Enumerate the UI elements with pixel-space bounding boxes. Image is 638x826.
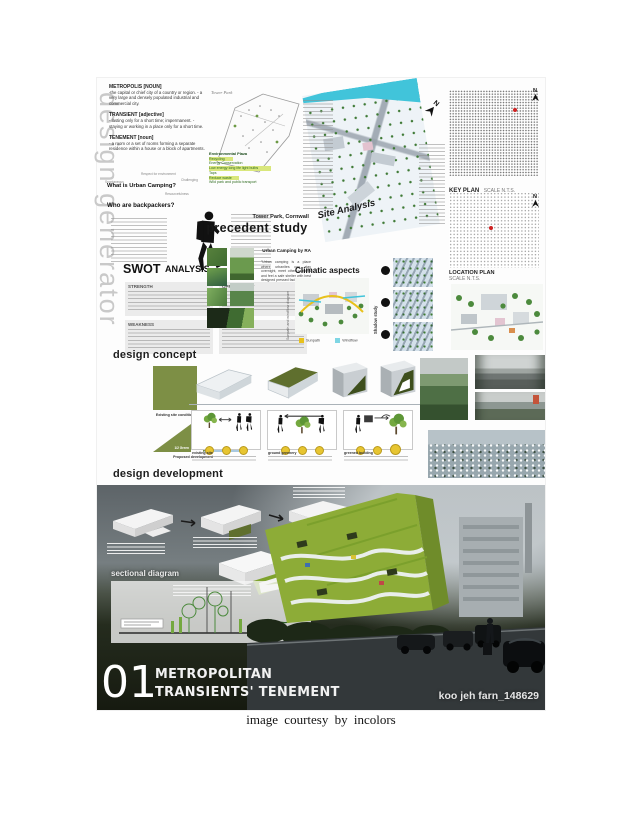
massing-stage-2	[263, 358, 323, 404]
text-placeholder	[192, 456, 256, 463]
precedent-feature-list: Environmental Plaza Recycling Energy Con…	[209, 152, 271, 185]
definition-text: - a room or a set of rooms forming a sep…	[109, 141, 205, 152]
smokestack	[525, 503, 532, 573]
design-development-panel: sectional diagram	[97, 485, 545, 710]
sunpath-legend-label: Sunpath	[306, 339, 320, 343]
project-title-line1: METROPOLITAN	[155, 666, 272, 682]
swot-strength-box: STRENGTH	[125, 282, 213, 316]
site-photo-street-2	[475, 392, 545, 420]
shadow-study-image	[393, 290, 433, 319]
concept-card-caption: greened building	[344, 451, 410, 455]
urban-camping-mindmap: Respect for environment Challenging Spon…	[103, 172, 213, 204]
text-placeholder	[268, 456, 332, 463]
backpackers-title: Who are backpackers?	[107, 202, 247, 209]
sunpath-legend-swatch	[299, 338, 304, 343]
two-way-arrow-icon	[219, 418, 231, 421]
concept-card-existing	[191, 410, 261, 450]
shadow-study-label: Shadow study	[373, 278, 378, 334]
billboard-accent	[533, 395, 539, 404]
feature-text: Environmental Plaza	[209, 151, 247, 156]
mindmap-satellite: Challenging	[181, 178, 198, 182]
north-arrow-icon	[532, 94, 539, 101]
climatic-title: Climatic aspects	[295, 266, 360, 275]
background-building	[459, 517, 523, 617]
case-photo	[207, 248, 227, 266]
massing-stage-3	[329, 356, 371, 402]
precedent-study-title: precedent study	[205, 221, 309, 235]
feature-item: Wild park and public transport	[209, 180, 271, 185]
concept-card-diagram	[268, 411, 336, 437]
design-development-heading: design development	[113, 468, 223, 480]
definition-text: -the capital or chief city of a country …	[109, 90, 205, 106]
building-render	[247, 485, 545, 710]
climatic-side-label: Sunpath and windflow diagram	[286, 274, 290, 340]
arrow-icon	[181, 520, 195, 526]
massing-baseline	[189, 404, 429, 405]
text-placeholder	[344, 456, 408, 463]
mindmap-title: What is Urban Camping?	[107, 183, 176, 189]
climatic-axon-diagram	[295, 278, 369, 334]
case-photo	[207, 268, 227, 286]
concept-card-ground-greenery	[267, 410, 337, 450]
concept-card-caption: ground greenery	[268, 451, 334, 455]
page: design generator METROPOLIS [NOUN] -the …	[0, 0, 638, 826]
image-caption: image courtesy by incolors	[97, 712, 545, 728]
site-photo-greenery	[420, 358, 468, 420]
precedent-plan-script-label: Tower Park	[211, 90, 232, 95]
definitions-block: METROPOLIS [NOUN] -the capital or chief …	[109, 84, 205, 152]
site-photo-street-1	[475, 355, 545, 389]
case-photo	[230, 283, 254, 306]
right-arrow-icon	[375, 415, 391, 420]
mindmap-satellite: Resourcefulness	[165, 192, 189, 196]
windflow-legend-label: Windflow	[342, 339, 357, 343]
case-photo	[207, 308, 254, 328]
concept-card-caption: existing site	[192, 451, 258, 455]
text-placeholder	[222, 329, 304, 349]
north-arrow: N	[529, 194, 541, 209]
location-plan-map	[449, 192, 539, 268]
author-watermark: koo jeh farn_148629	[439, 690, 539, 702]
shadow-study-image	[393, 322, 433, 351]
key-plan-map	[449, 90, 539, 176]
board-number: 01	[101, 661, 157, 705]
clock-icon	[381, 298, 390, 307]
presentation-board: design generator METROPOLIS [NOUN] -the …	[97, 78, 545, 710]
clock-icon	[381, 266, 390, 275]
case-photo	[230, 248, 254, 280]
mindmap-satellite: Respect for environment	[141, 172, 176, 176]
north-arrow-icon	[532, 200, 539, 207]
triangle-label: 1/2 Green	[174, 446, 189, 450]
swot-quadrant-label: WEAKNESS	[125, 320, 213, 328]
concept-card-diagram	[344, 411, 412, 437]
north-arrow: N	[421, 97, 443, 119]
map-annotations-right	[419, 144, 445, 224]
green-triangle-diagram: 1/2 Green	[153, 424, 191, 452]
text-placeholder	[128, 329, 210, 349]
concept-card-greened-building	[343, 410, 413, 450]
location-plan-label: LOCATION PLAN SCALE N.T.S.	[449, 270, 495, 282]
concept-card-diagram	[192, 411, 260, 437]
feature-item: Environmental Plaza	[209, 152, 271, 157]
site-axonometric-view	[451, 284, 543, 350]
massing-step-1	[113, 509, 173, 537]
definition-item: METROPOLIS [NOUN] -the capital or chief …	[109, 84, 205, 106]
annotation-placeholder	[107, 543, 165, 555]
definition-text: - lasting only for a short time; imperma…	[109, 118, 205, 129]
map-annotations-left	[303, 100, 333, 210]
text-placeholder	[128, 291, 210, 311]
swot-title: SWOT	[123, 262, 161, 276]
swot-subtitle: ANALYSIS	[165, 264, 210, 274]
north-arrow: N	[529, 88, 541, 103]
climatic-legend: Sunpath Windflow	[299, 338, 358, 343]
precedent-location-label: Tower Park, Cornwall	[235, 214, 309, 220]
swot-quadrant-label: STRENGTH	[125, 282, 213, 290]
definition-item: TRANSIENT [adjective] - lasting only for…	[109, 112, 205, 129]
design-concept-heading: design concept	[113, 349, 196, 361]
site-marker-dot	[513, 108, 517, 112]
feature-item: Low energy long life light bulbs	[209, 166, 271, 171]
site-photo-cityscape	[428, 430, 545, 478]
map-site-marker	[362, 142, 373, 151]
definition-item: TENEMENT [noun] - a room or a set of roo…	[109, 135, 205, 152]
mindmap-satellite	[111, 194, 112, 198]
site-marker-dot	[489, 226, 493, 230]
case-study-title: Urban Camping by RA	[259, 248, 311, 253]
shadow-study-image	[393, 258, 433, 287]
map-building-block	[370, 152, 395, 166]
clock-icon	[381, 330, 390, 339]
camera-box	[364, 415, 373, 422]
project-title-line2: TRANSIENTS' TENEMENT	[155, 684, 340, 700]
sectional-diagram-label: sectional diagram	[111, 569, 179, 578]
case-photo	[207, 288, 227, 306]
text-placeholder	[111, 218, 167, 264]
massing-stage-4	[377, 354, 419, 402]
location-plan-scale: SCALE N.T.S.	[449, 276, 495, 282]
windflow-legend-swatch	[335, 338, 340, 343]
massing-stage-1	[191, 360, 257, 404]
